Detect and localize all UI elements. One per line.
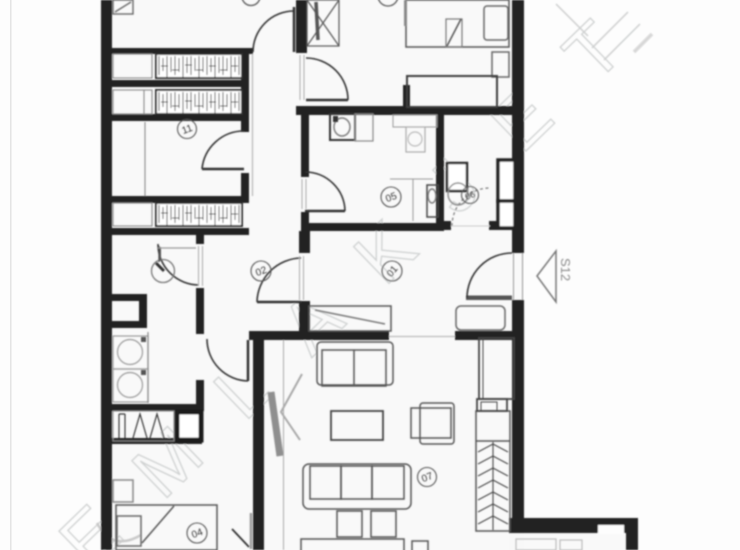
svg-text:S12: S12 — [558, 258, 573, 281]
